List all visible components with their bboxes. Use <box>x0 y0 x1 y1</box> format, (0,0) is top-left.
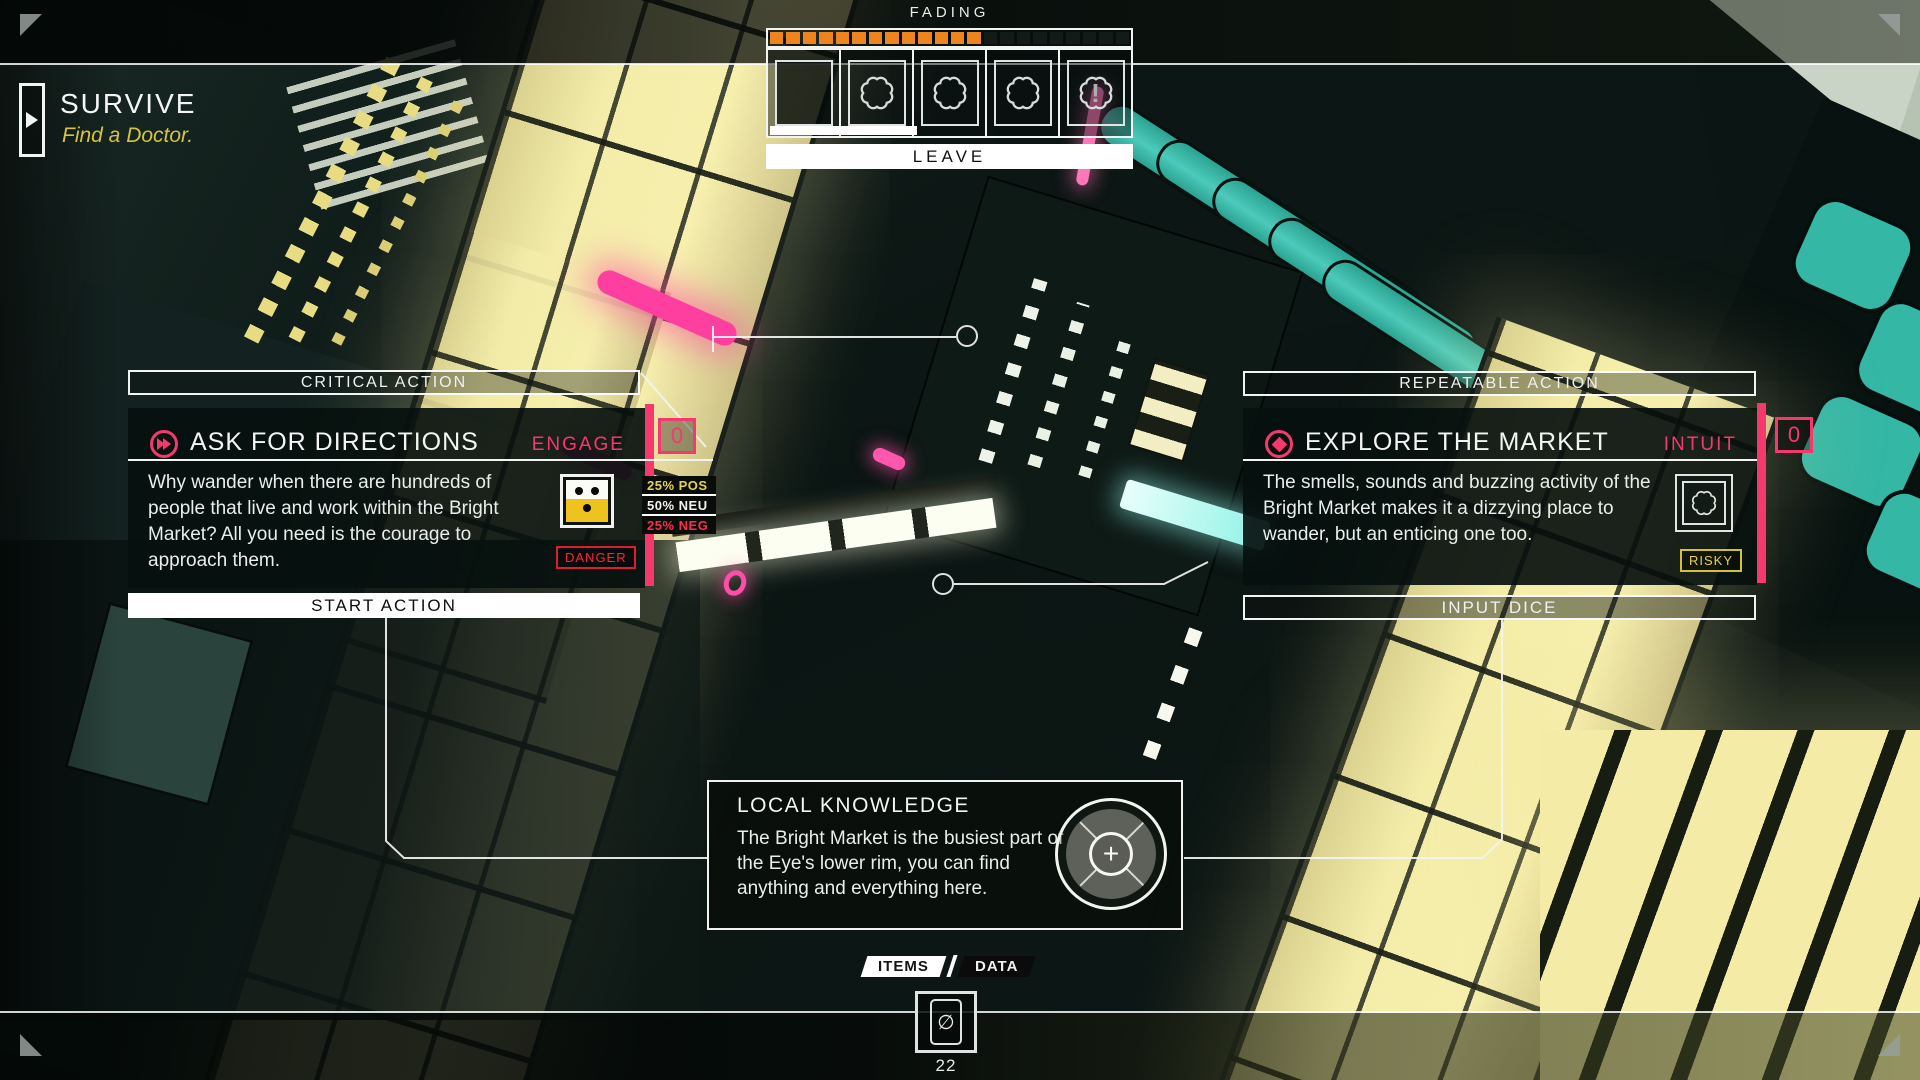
accent-bar <box>1757 403 1766 583</box>
fading-segment <box>984 32 997 44</box>
action-panel[interactable]: EXPLORE THE MARKET INTUIT The smells, so… <box>1243 408 1757 585</box>
fading-segments <box>766 28 1133 48</box>
input-dice-button[interactable]: INPUT DICE <box>1243 595 1756 620</box>
fading-segment <box>1017 32 1030 44</box>
clock-die-slot-die[interactable] <box>914 50 987 136</box>
fading-segment <box>1099 32 1112 44</box>
clock-die-slot-die[interactable] <box>987 50 1060 136</box>
fading-segment <box>1066 32 1079 44</box>
play-icon <box>26 112 38 128</box>
slotted-dice-counter: 0 <box>658 418 696 454</box>
risk-tag: DANGER <box>556 546 636 569</box>
fading-segment <box>1083 32 1096 44</box>
skill-label: INTUIT <box>1664 434 1737 456</box>
action-title: EXPLORE THE MARKET <box>1305 428 1609 457</box>
action-description: Why wander when there are hundreds of pe… <box>148 470 508 574</box>
map-marker-circle <box>933 574 953 594</box>
tab-data[interactable]: DATA <box>957 956 1035 977</box>
clock-timer-bar <box>770 126 917 135</box>
location-title: LOCAL KNOWLEDGE <box>737 794 970 818</box>
die-blob-icon <box>1687 486 1721 520</box>
fading-segment <box>918 32 931 44</box>
odds-negative: 25% NEG <box>642 516 716 534</box>
fading-segment <box>770 32 783 44</box>
fading-segment <box>1033 32 1046 44</box>
engage-icon <box>150 430 178 458</box>
cycle-clock-icon: + <box>1055 798 1167 910</box>
fading-segment <box>951 32 964 44</box>
fading-segment <box>885 32 898 44</box>
action-type-header: REPEATABLE ACTION <box>1243 371 1756 396</box>
action-title: ASK FOR DIRECTIONS <box>190 428 479 457</box>
fading-segment <box>869 32 882 44</box>
skill-label: ENGAGE <box>532 434 625 456</box>
fading-segment <box>836 32 849 44</box>
action-card-repeatable: REPEATABLE ACTION 0 EXPLORE THE MARKET I… <box>1243 371 1863 651</box>
fading-segment <box>803 32 816 44</box>
danger-face-icon <box>560 474 614 528</box>
tab-items[interactable]: ITEMS <box>861 956 947 977</box>
clock-die-slot-alert[interactable]: ! <box>1060 50 1131 136</box>
objective-marker <box>19 83 45 157</box>
die-input-slot[interactable] <box>1675 474 1733 532</box>
intuit-icon <box>1265 430 1293 458</box>
risk-tag: RISKY <box>1680 549 1742 572</box>
fading-segment <box>819 32 832 44</box>
map-marker-circle <box>957 326 977 346</box>
clock-title: FADING <box>766 4 1133 21</box>
fading-segment <box>935 32 948 44</box>
odds-neutral: 50% NEU <box>642 496 716 514</box>
fading-segment <box>786 32 799 44</box>
odds-list: 25% POS 50% NEU 25% NEG <box>642 476 716 534</box>
fading-segment <box>902 32 915 44</box>
fading-segment <box>1000 32 1013 44</box>
plus-icon: + <box>1089 832 1133 876</box>
null-die-icon: ∅ <box>930 999 962 1045</box>
tab-slash-divider <box>946 955 957 977</box>
leave-button[interactable]: LEAVE <box>766 144 1133 169</box>
divider <box>1243 459 1757 461</box>
fading-segment <box>852 32 865 44</box>
location-info-panel: LOCAL KNOWLEDGE The Bright Market is the… <box>707 780 1183 930</box>
objective-subtitle: Find a Doctor. <box>62 124 193 148</box>
fading-segment <box>967 32 980 44</box>
dice-pool-button[interactable]: ∅ <box>915 991 977 1053</box>
clock-die-slot-die[interactable] <box>841 50 914 136</box>
fading-segment <box>1116 32 1129 44</box>
dice-pool-count: 22 <box>915 1056 977 1076</box>
action-panel[interactable]: ASK FOR DIRECTIONS ENGAGE Why wander whe… <box>128 408 645 588</box>
slotted-dice-counter: 0 <box>1775 417 1813 453</box>
start-action-button[interactable]: START ACTION <box>128 593 640 618</box>
objective-title: SURVIVE <box>60 88 196 120</box>
alert-die-icon: ! <box>1091 78 1100 109</box>
location-description: The Bright Market is the busiest part of… <box>737 826 1067 901</box>
action-description: The smells, sounds and buzzing activity … <box>1263 470 1653 548</box>
fading-segment <box>1050 32 1063 44</box>
action-type-header: CRITICAL ACTION <box>128 370 640 395</box>
clock-dice-slots: ! <box>766 48 1133 138</box>
inventory-tabs: ITEMS DATA <box>864 955 1032 977</box>
divider <box>128 459 713 461</box>
odds-positive: 25% POS <box>642 476 716 494</box>
action-card-critical: CRITICAL ACTION 0 ASK FOR DIRECTIONS ENG… <box>128 370 788 650</box>
clock-die-slot-empty[interactable] <box>768 50 841 136</box>
game-screen: SURVIVE Find a Doctor. FADING ! LEAVE CR… <box>0 0 1920 1080</box>
